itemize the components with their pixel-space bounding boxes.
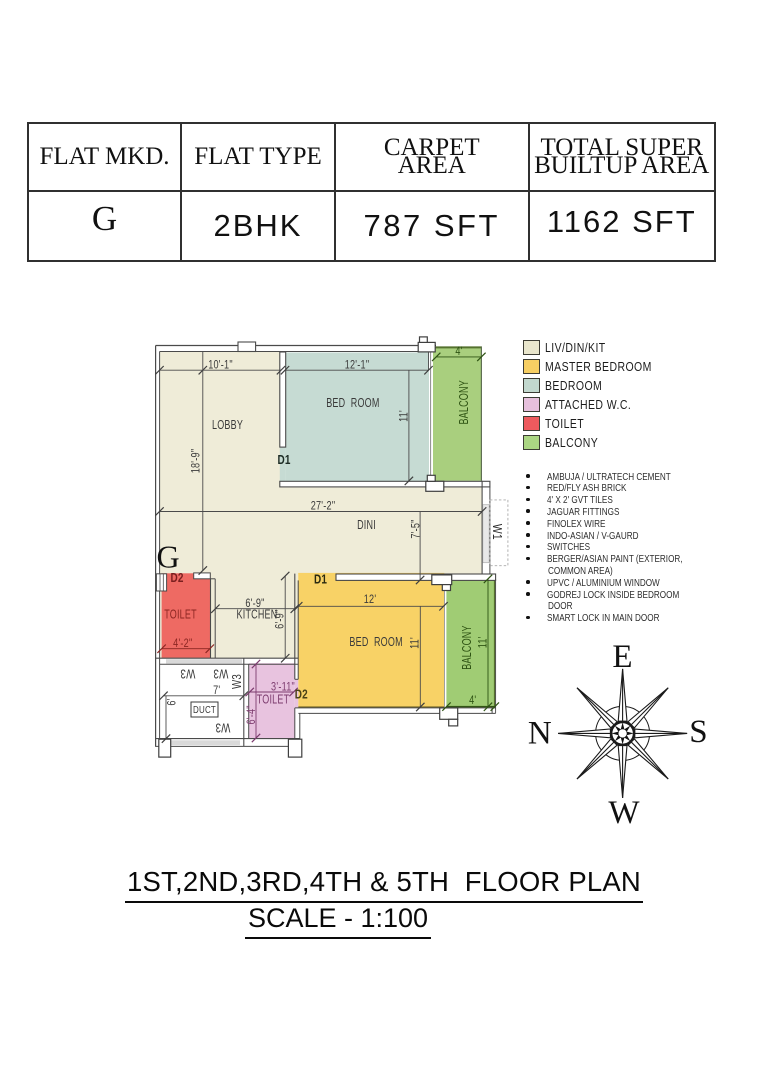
svg-text:11': 11'	[397, 410, 411, 422]
svg-text:12': 12'	[364, 593, 377, 607]
svg-text:11': 11'	[408, 637, 422, 649]
svg-text:7': 7'	[213, 684, 220, 698]
svg-text:W3: W3	[215, 720, 230, 733]
svg-text:10'-1": 10'-1"	[208, 358, 233, 372]
svg-text:TOILET: TOILET	[164, 608, 197, 622]
svg-text:4': 4'	[455, 345, 462, 359]
svg-text:W3: W3	[180, 666, 195, 679]
svg-text:W3: W3	[231, 674, 244, 689]
svg-text:N: N	[528, 716, 552, 752]
svg-text:BALCONY: BALCONY	[461, 625, 475, 670]
svg-text:W3: W3	[213, 666, 228, 679]
svg-text:18'-9": 18'-9"	[189, 449, 203, 474]
svg-text:D2: D2	[295, 688, 308, 701]
svg-text:LOBBY: LOBBY	[212, 419, 243, 433]
svg-text:S: S	[689, 714, 707, 750]
svg-text:KITCHEN: KITCHEN	[237, 608, 278, 622]
svg-text:TOILET: TOILET	[257, 693, 290, 707]
svg-text:BED ROOM: BED ROOM	[326, 396, 379, 410]
svg-text:G: G	[156, 539, 179, 575]
svg-text:W1: W1	[489, 524, 503, 540]
svg-text:6': 6'	[165, 698, 179, 705]
svg-text:DUCT: DUCT	[193, 704, 216, 715]
svg-text:4': 4'	[469, 694, 476, 708]
svg-text:BALCONY: BALCONY	[458, 380, 472, 425]
svg-text:7'-5": 7'-5"	[409, 519, 423, 538]
svg-text:11': 11'	[476, 636, 490, 648]
svg-text:12'-1": 12'-1"	[345, 358, 370, 372]
svg-text:D1: D1	[277, 454, 290, 467]
svg-text:3'-11": 3'-11"	[271, 680, 295, 694]
svg-text:4'-2": 4'-2"	[173, 637, 192, 651]
svg-text:DINI: DINI	[357, 518, 376, 532]
svg-text:D1: D1	[314, 574, 327, 587]
svg-text:BED ROOM: BED ROOM	[349, 635, 402, 649]
svg-text:27'-2": 27'-2"	[311, 500, 336, 514]
svg-text:6'-4": 6'-4"	[245, 705, 259, 724]
svg-text:W: W	[608, 795, 640, 831]
svg-text:E: E	[612, 639, 632, 675]
